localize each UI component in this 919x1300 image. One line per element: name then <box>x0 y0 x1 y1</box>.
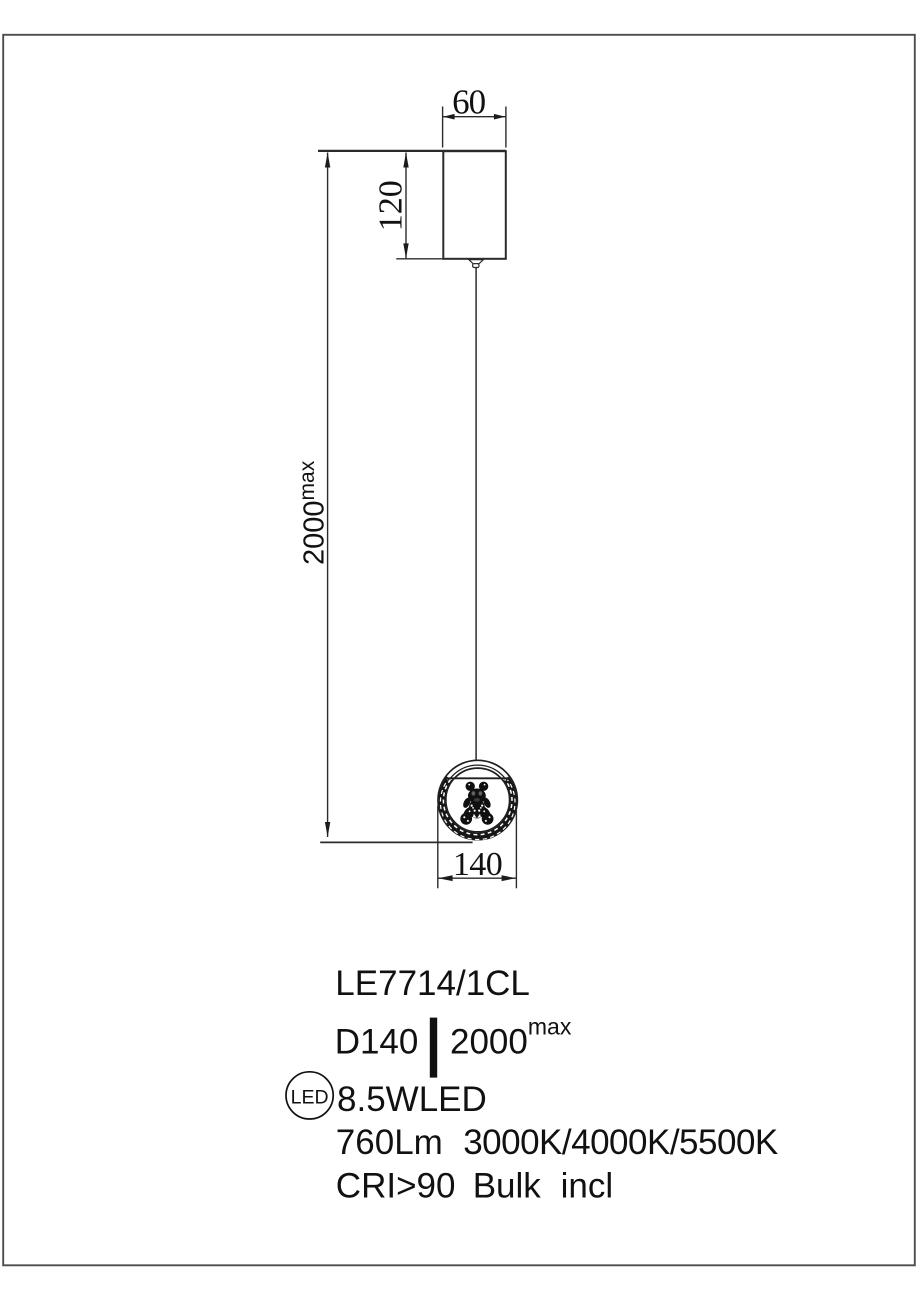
svg-text:3000K/4000K/5500K: 3000K/4000K/5500K <box>463 1123 778 1162</box>
svg-text:incl: incl <box>561 1166 614 1205</box>
svg-text:760Lm: 760Lm <box>336 1123 443 1162</box>
svg-text:8.5WLED: 8.5WLED <box>337 1080 487 1119</box>
svg-text:LED: LED <box>291 1086 329 1108</box>
svg-text:60: 60 <box>452 83 486 122</box>
svg-text:D140: D140 <box>335 1023 419 1062</box>
svg-text:CRI>90: CRI>90 <box>336 1166 456 1205</box>
svg-text:120: 120 <box>373 180 410 231</box>
svg-text:Bulk: Bulk <box>473 1166 542 1205</box>
svg-text:LE7714/1CL: LE7714/1CL <box>335 964 530 1003</box>
svg-text:140: 140 <box>453 846 502 883</box>
